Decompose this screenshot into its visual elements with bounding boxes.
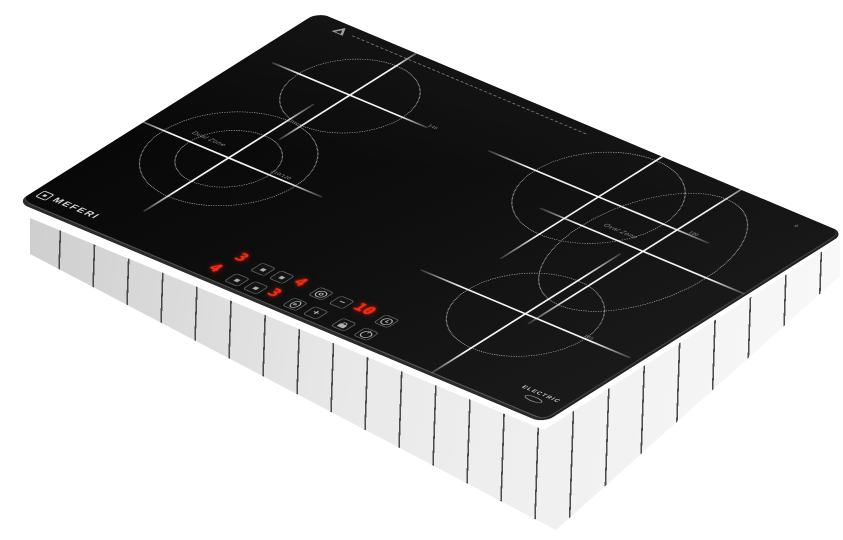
dual-zone-icon [312, 289, 330, 298]
zone-diameter-mark: 145 [426, 124, 440, 131]
zone-power-display-front-right: 3 [264, 287, 285, 299]
brand-logo: MEFERI [35, 191, 102, 221]
plus-label: + [309, 309, 323, 317]
cooking-zone-back-right: 180 [318, 12, 842, 232]
electric-print: ELECTRIC [493, 377, 581, 416]
plus-button[interactable]: + [302, 306, 329, 320]
zone-select-icon [259, 268, 266, 272]
power-icon [357, 329, 375, 338]
lock-icon [337, 323, 348, 328]
minus-label: − [335, 299, 349, 307]
zone-power-display-front-left: 4 [205, 262, 226, 274]
zone-select-icon [252, 286, 259, 290]
brand-logo-text: MEFERI [49, 196, 102, 220]
power-button[interactable] [353, 327, 380, 341]
warning-triangle-icon [331, 26, 351, 36]
clock-icon [378, 317, 396, 326]
oval-zone-icon [287, 300, 304, 309]
zone-power-display-back-left: 3 [231, 252, 252, 264]
product-photo-electric-cooktop: + 145 Dual Zone 210/120 180 [0, 0, 843, 540]
zone-select-icon [233, 278, 240, 282]
zone-select-icon [278, 275, 285, 279]
zone-power-display-back-right: 4 [290, 277, 311, 289]
timer-button[interactable] [373, 314, 400, 328]
oval-zone-button[interactable] [282, 297, 309, 311]
child-lock-button[interactable] [330, 318, 357, 332]
timer-display: 10 [349, 302, 379, 317]
dual-zone-button[interactable] [308, 287, 335, 301]
certification-mark: + [790, 222, 802, 229]
